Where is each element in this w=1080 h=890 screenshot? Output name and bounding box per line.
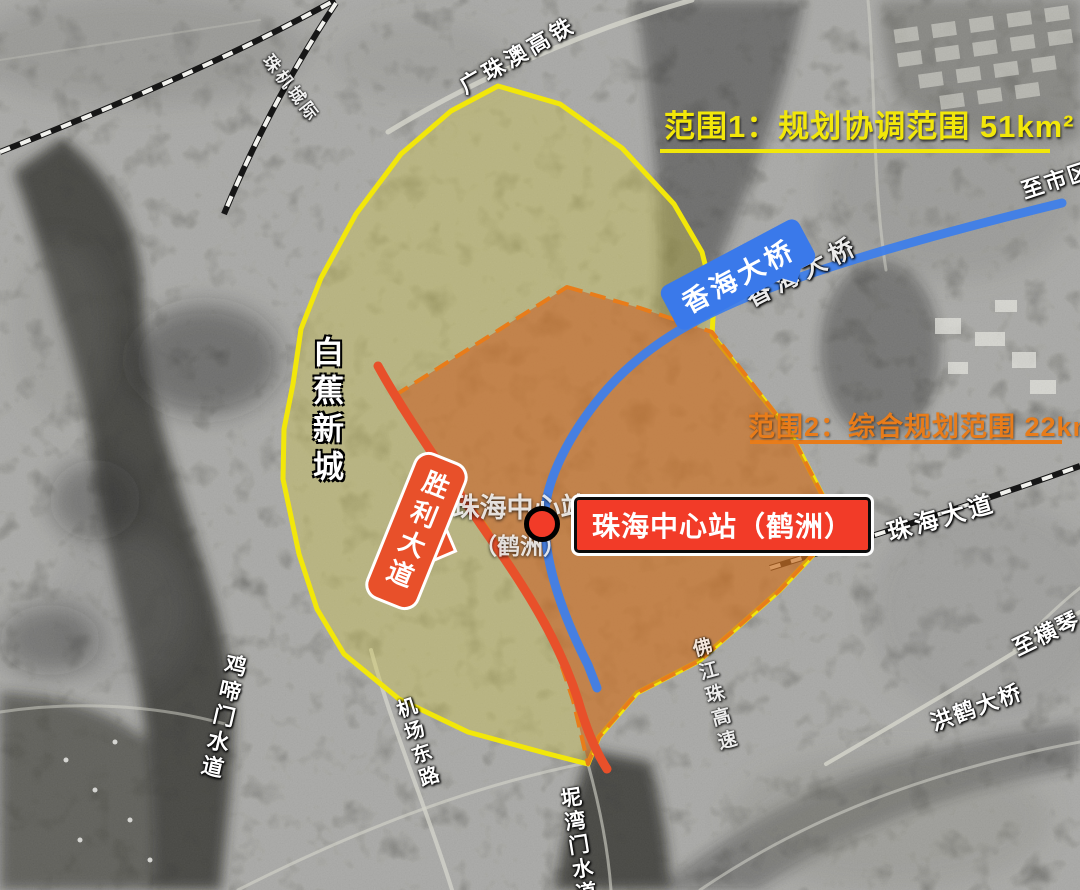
- range1-caption: 范围1：规划协调范围 51km²: [664, 101, 1074, 146]
- baijiao-new-town-label: 白蕉新城: [303, 336, 348, 488]
- zhuhai-central-station-badge: 珠海中心站（鹤洲）: [574, 497, 871, 553]
- station-dot-marker: [524, 506, 560, 542]
- satellite-planning-map: 香海大桥 珠海中心站 （鹤洲） 白蕉新城 广珠澳高铁 珠机城际 珠海大道 至市区…: [0, 0, 1080, 890]
- range2-caption: 范围2：综合规划范围 22km²: [748, 405, 1080, 444]
